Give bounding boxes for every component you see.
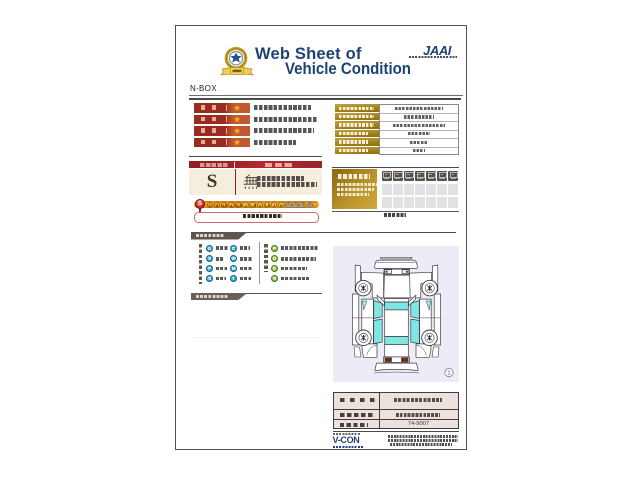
svg-text:1: 1: [448, 371, 451, 377]
